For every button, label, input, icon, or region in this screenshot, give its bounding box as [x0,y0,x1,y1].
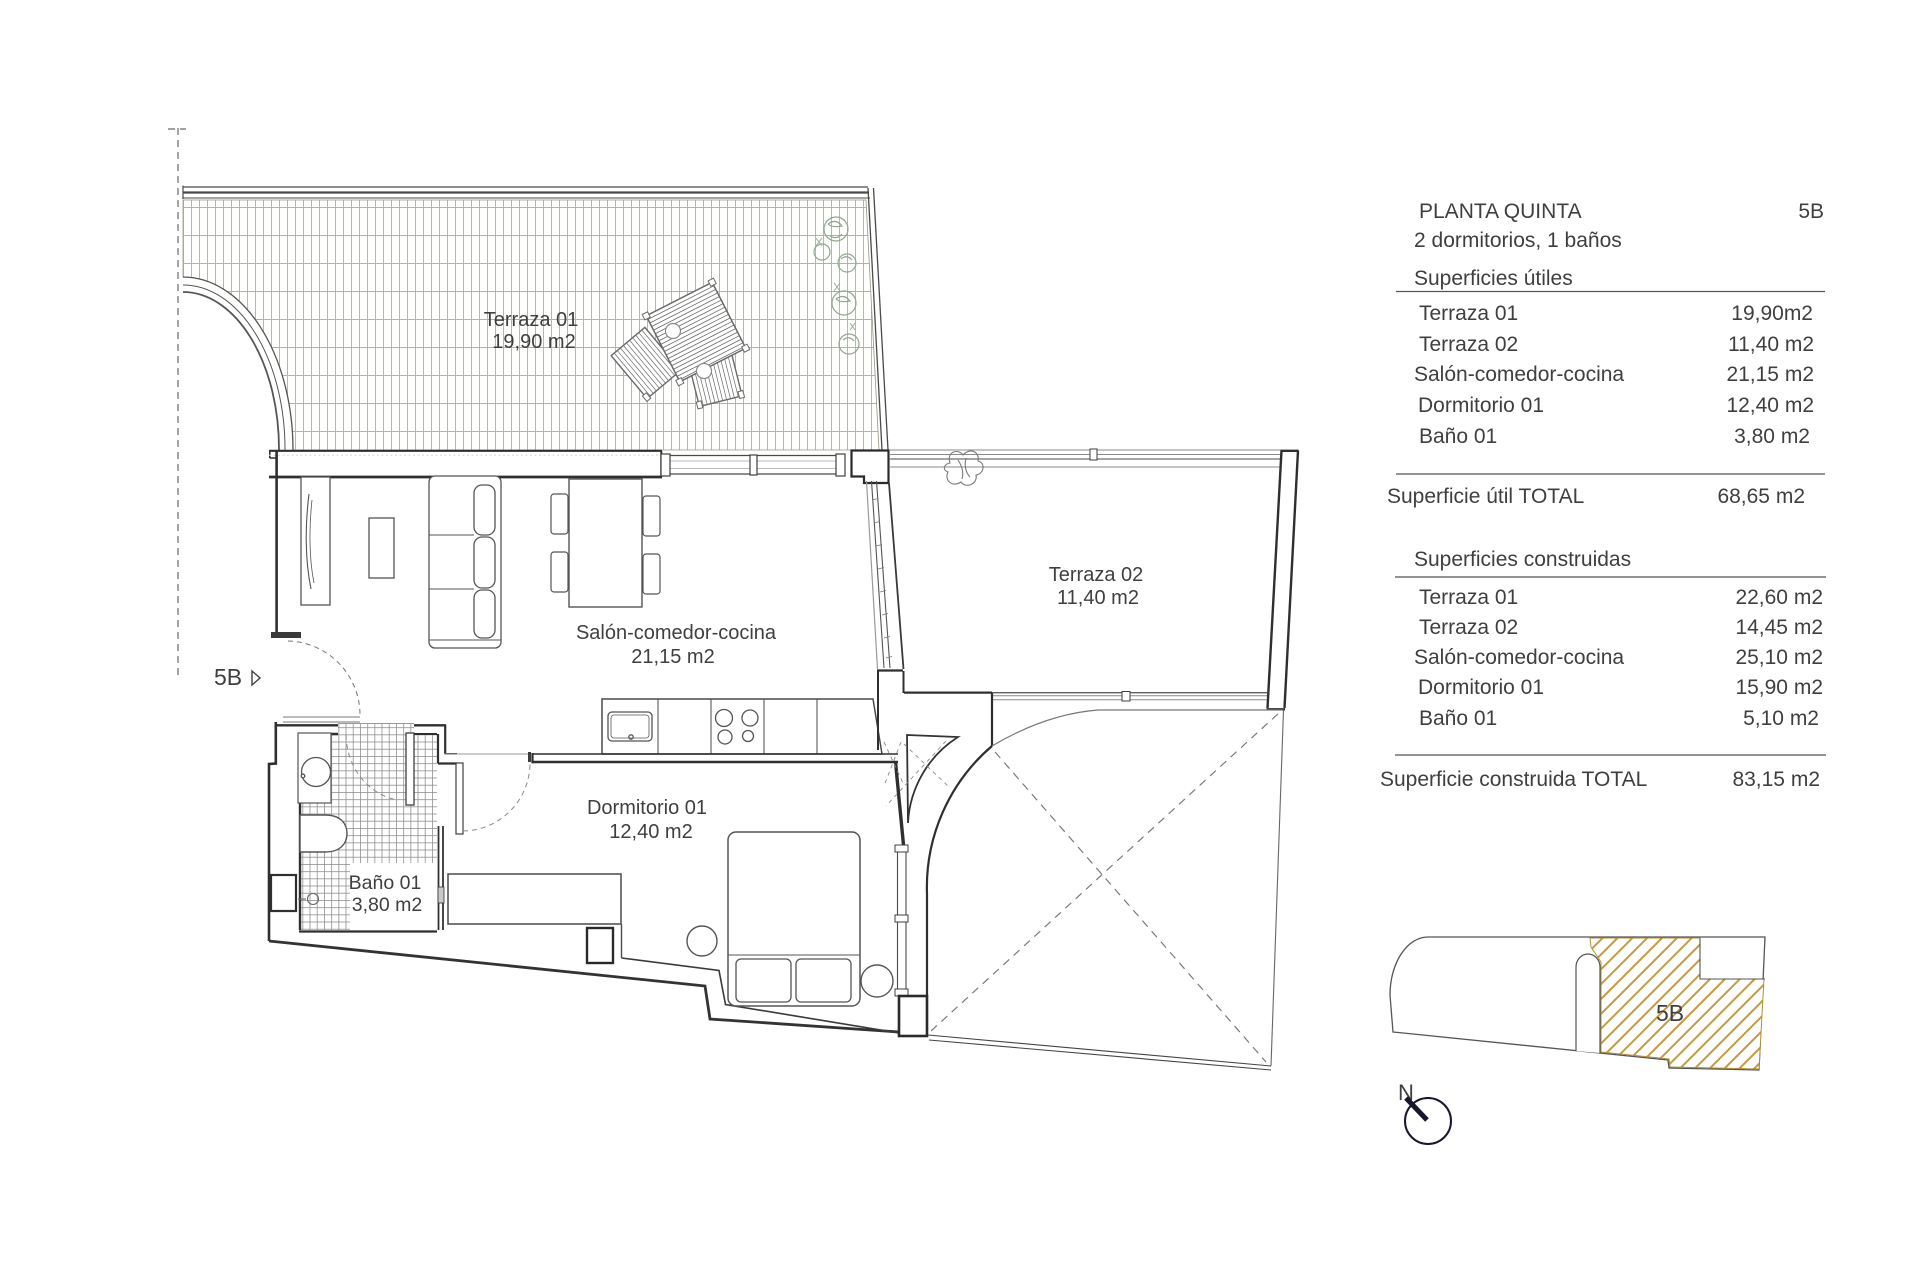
svg-text:Baño 01: Baño 01 [1419,707,1497,730]
svg-text:Superficies construidas: Superficies construidas [1414,548,1631,571]
svg-text:5,10 m2: 5,10 m2 [1743,707,1819,730]
svg-text:Salón-comedor-cocina: Salón-comedor-cocina [1414,646,1624,669]
svg-text:19,90m2: 19,90m2 [1731,302,1813,325]
svg-text:Terraza 02: Terraza 02 [1049,564,1144,586]
svg-text:15,90 m2: 15,90 m2 [1735,676,1823,699]
svg-text:Terraza 01: Terraza 01 [1419,302,1518,325]
svg-text:11,40 m2: 11,40 m2 [1728,333,1814,356]
svg-text:12,40 m2: 12,40 m2 [609,821,692,843]
svg-text:Dormitorio 01: Dormitorio 01 [587,797,707,819]
svg-text:3,80 m2: 3,80 m2 [1734,425,1810,448]
svg-text:Baño 01: Baño 01 [1419,425,1497,448]
svg-text:22,60 m2: 22,60 m2 [1735,586,1823,609]
svg-text:Terraza 01: Terraza 01 [1419,586,1518,609]
svg-text:Salón-comedor-cocina: Salón-comedor-cocina [1414,363,1624,386]
svg-text:2 dormitorios, 1 baños: 2 dormitorios, 1 baños [1414,229,1622,252]
svg-text:Terraza 01: Terraza 01 [484,309,579,331]
svg-text:11,40 m2: 11,40 m2 [1057,587,1139,609]
svg-text:Terraza 02: Terraza 02 [1419,616,1518,639]
svg-text:Terraza 02: Terraza 02 [1419,333,1518,356]
svg-text:83,15 m2: 83,15 m2 [1732,768,1820,791]
svg-text:5B: 5B [1798,200,1824,223]
svg-text:19,90 m2: 19,90 m2 [492,331,575,353]
svg-text:Superficie construida TOTAL: Superficie construida TOTAL [1380,768,1647,791]
svg-text:Salón-comedor-cocina: Salón-comedor-cocina [576,622,777,644]
svg-text:Dormitorio 01: Dormitorio 01 [1418,394,1544,417]
svg-text:5B: 5B [1656,1000,1684,1026]
svg-text:14,45 m2: 14,45 m2 [1735,616,1823,639]
svg-text:21,15 m2: 21,15 m2 [631,646,714,668]
svg-text:Superficie útil TOTAL: Superficie útil TOTAL [1387,485,1584,508]
svg-text:Superficies útiles: Superficies útiles [1414,267,1573,290]
svg-text:Dormitorio 01: Dormitorio 01 [1418,676,1544,699]
svg-text:PLANTA QUINTA: PLANTA QUINTA [1419,200,1582,223]
svg-text:3,80 m2: 3,80 m2 [352,894,422,916]
svg-text:21,15 m2: 21,15 m2 [1726,363,1814,386]
svg-text:25,10 m2: 25,10 m2 [1735,646,1823,669]
svg-text:Baño 01: Baño 01 [349,872,422,894]
svg-text:5B: 5B [214,664,242,690]
svg-text:68,65 m2: 68,65 m2 [1717,485,1805,508]
svg-text:12,40 m2: 12,40 m2 [1726,394,1814,417]
